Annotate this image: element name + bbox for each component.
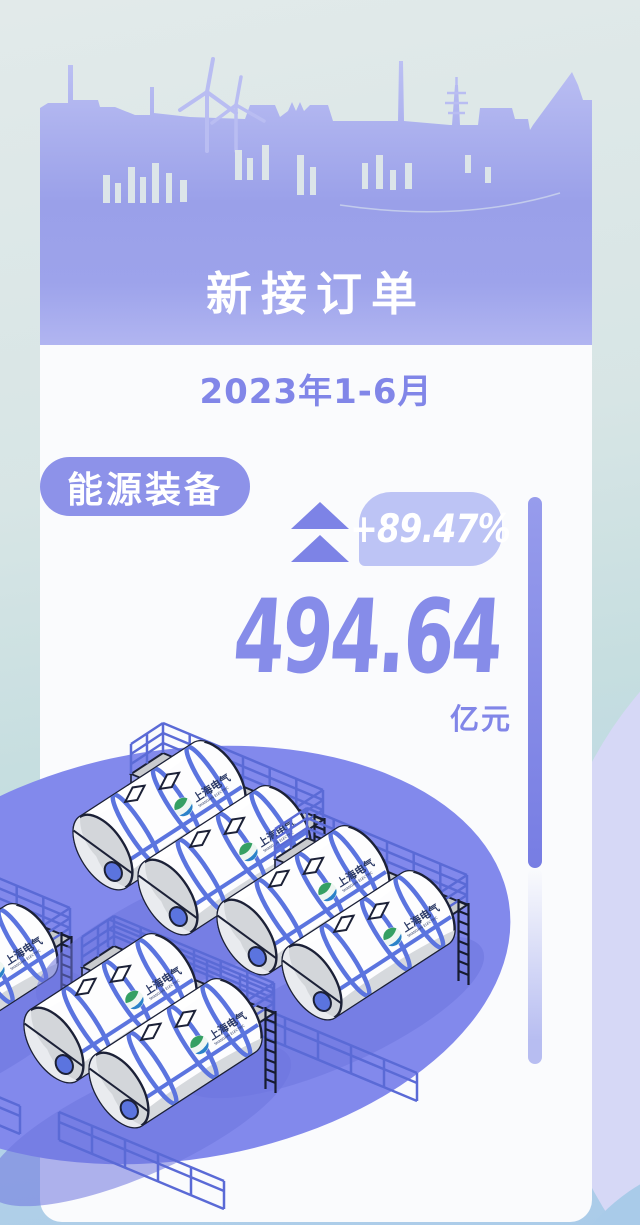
report-period: 2023年1-6月: [40, 364, 592, 413]
triangle-up-icon: [291, 535, 349, 562]
double-triangle-up-icon: [291, 502, 351, 568]
triangle-up-icon: [291, 502, 349, 529]
tank-farm-illustration: 上海电气 SHANGHAI ELECTRIC: [0, 700, 640, 1210]
infographic-poster: 新接订单 2023年1-6月 能源装备 +89.47% 494.64 亿元: [0, 0, 640, 1225]
category-badge: 能源装备: [40, 457, 250, 516]
page-title: 新接订单: [40, 258, 592, 324]
growth-bubble: +89.47%: [359, 492, 502, 566]
growth-value: +89.47%: [351, 507, 511, 552]
kpi-value: 494.64: [165, 586, 503, 690]
